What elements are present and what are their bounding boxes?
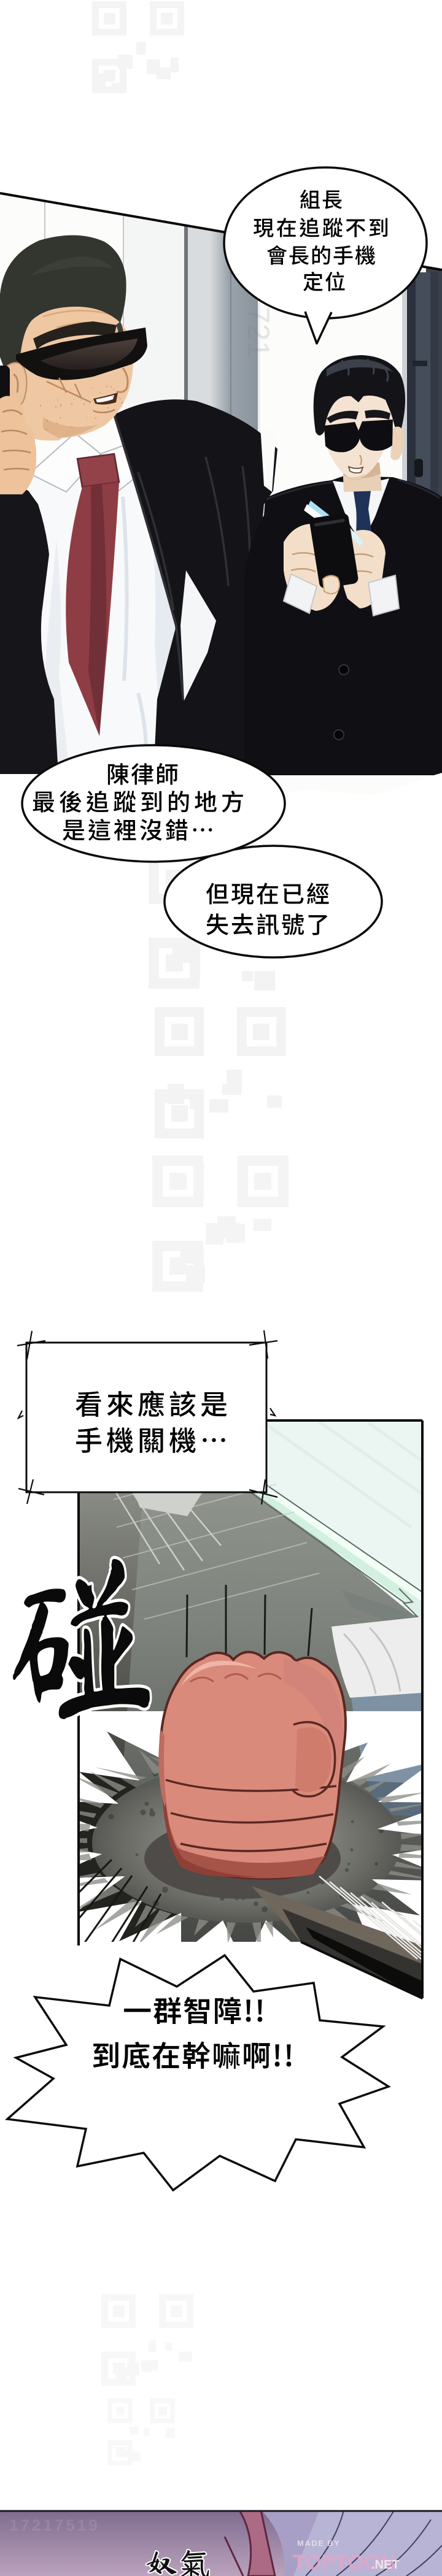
svg-text:721: 721 [241, 307, 276, 358]
svg-text:17217519: 17217519 [9, 2516, 100, 2534]
svg-text:MADE BY: MADE BY [297, 2539, 340, 2548]
svg-text:.NET: .NET [371, 2558, 400, 2572]
